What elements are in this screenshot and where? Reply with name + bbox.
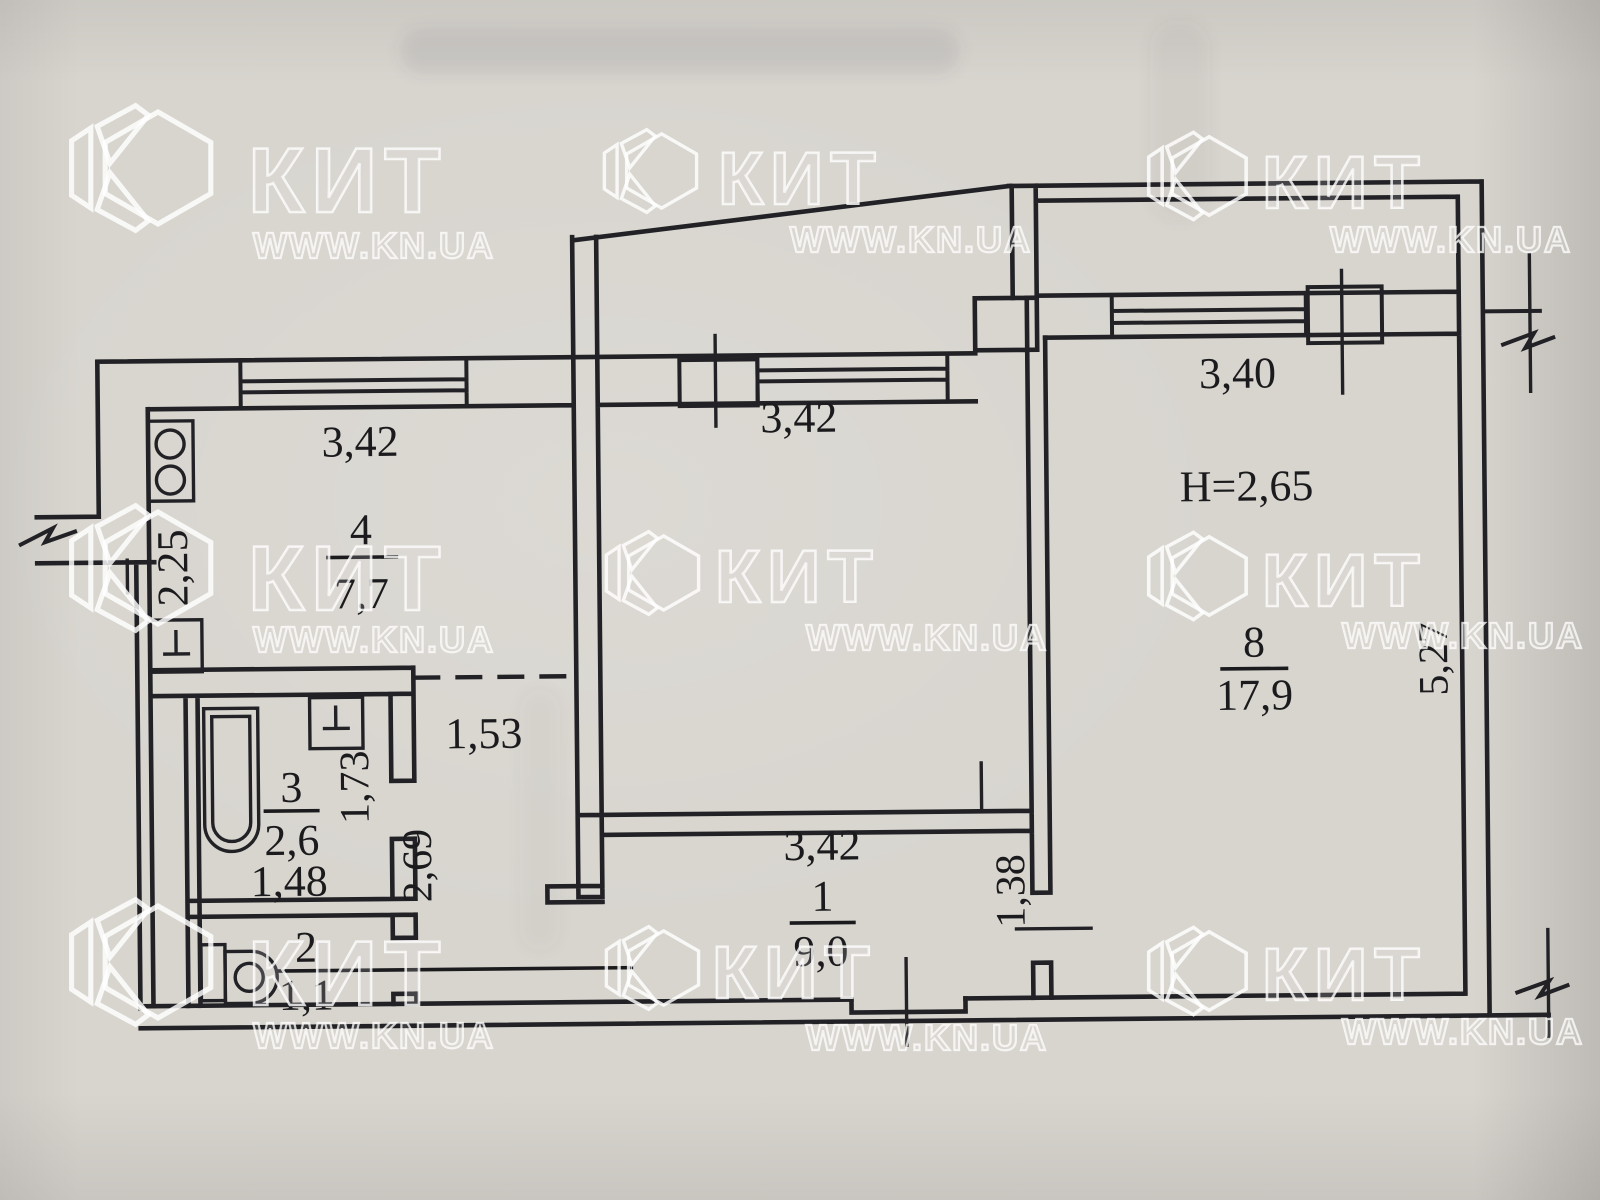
watermark-brand-text: КИТ	[1262, 539, 1427, 622]
window-symbols	[240, 293, 1307, 408]
dim-hall-width: 3,42	[783, 820, 860, 870]
room-living-area: 17,9	[1216, 670, 1293, 720]
kit-logo-icon	[604, 130, 696, 213]
dim-loggia-width: 3,40	[1199, 348, 1276, 398]
watermark-brand-text: КИТ	[248, 130, 447, 232]
room-hall-number: 1	[811, 872, 833, 921]
room-bathroom-number: 3	[280, 763, 302, 812]
plan-labels: 3,42 4 7,7 2,25 3,42 1,53 1,73 2,69 3 2,…	[146, 347, 1460, 1022]
watermark-brand-text: КИТ	[718, 137, 883, 220]
watermark-brand-text: КИТ	[248, 528, 447, 630]
kit-logo-icon	[1149, 532, 1246, 619]
floor-plan-drawing: 3,42 4 7,7 2,25 3,42 1,53 1,73 2,69 3 2,…	[0, 0, 1600, 1200]
watermark-brand-text: КИТ	[712, 931, 877, 1014]
kit-logo-icon	[606, 532, 698, 615]
watermark-brand-text: КИТ	[715, 535, 880, 618]
dim-niche-depth: 1,38	[988, 854, 1035, 928]
watermark-url-text: WWW.KN.UA	[1342, 1011, 1584, 1052]
dim-kitchen-width: 3,42	[321, 417, 398, 467]
washbasin-symbol	[310, 697, 363, 749]
ceiling-height-label: H=2,65	[1180, 461, 1314, 511]
kitchen-sink-symbol	[150, 620, 202, 672]
watermark-url-text: WWW.KN.UA	[806, 1017, 1048, 1058]
watermark-url-text: WWW.KN.UA	[1342, 615, 1584, 656]
watermark-url-text: WWW.KN.UA	[806, 617, 1048, 658]
watermark-url-text: WWW.KN.UA	[253, 1015, 495, 1056]
stove-symbol	[148, 421, 194, 501]
watermark-url-text: WWW.KN.UA	[253, 225, 495, 266]
watermark-url-text: WWW.KN.UA	[1330, 219, 1572, 260]
dim-kitchen-depth: 2,25	[148, 529, 198, 606]
watermark-brand-text: КИТ	[1262, 141, 1427, 224]
watermark-url-text: WWW.KN.UA	[790, 219, 1032, 260]
dim-corridor-depth: 2,69	[395, 829, 442, 903]
room-living-number: 8	[1243, 618, 1265, 667]
watermark-url-text: WWW.KN.UA	[253, 619, 495, 660]
dim-bathroom-depth: 1,73	[332, 750, 379, 824]
dim-center-room-width: 3,42	[760, 393, 837, 443]
kit-logo-icon	[606, 927, 698, 1010]
watermark-brand-text: КИТ	[248, 923, 447, 1025]
kit-logo-icon	[1149, 927, 1246, 1014]
dim-bathroom-width: 1,48	[251, 857, 328, 907]
open-passage-dashed-line	[413, 676, 576, 678]
kit-logo-icon	[72, 106, 211, 231]
watermark-brand-text: КИТ	[1262, 933, 1427, 1016]
dim-corridor-width: 1,53	[445, 709, 522, 759]
scanned-floor-plan-page: 3,42 4 7,7 2,25 3,42 1,53 1,73 2,69 3 2,…	[0, 0, 1600, 1200]
bathtub-symbol	[204, 708, 259, 852]
balcony-door-symbol	[679, 359, 757, 406]
